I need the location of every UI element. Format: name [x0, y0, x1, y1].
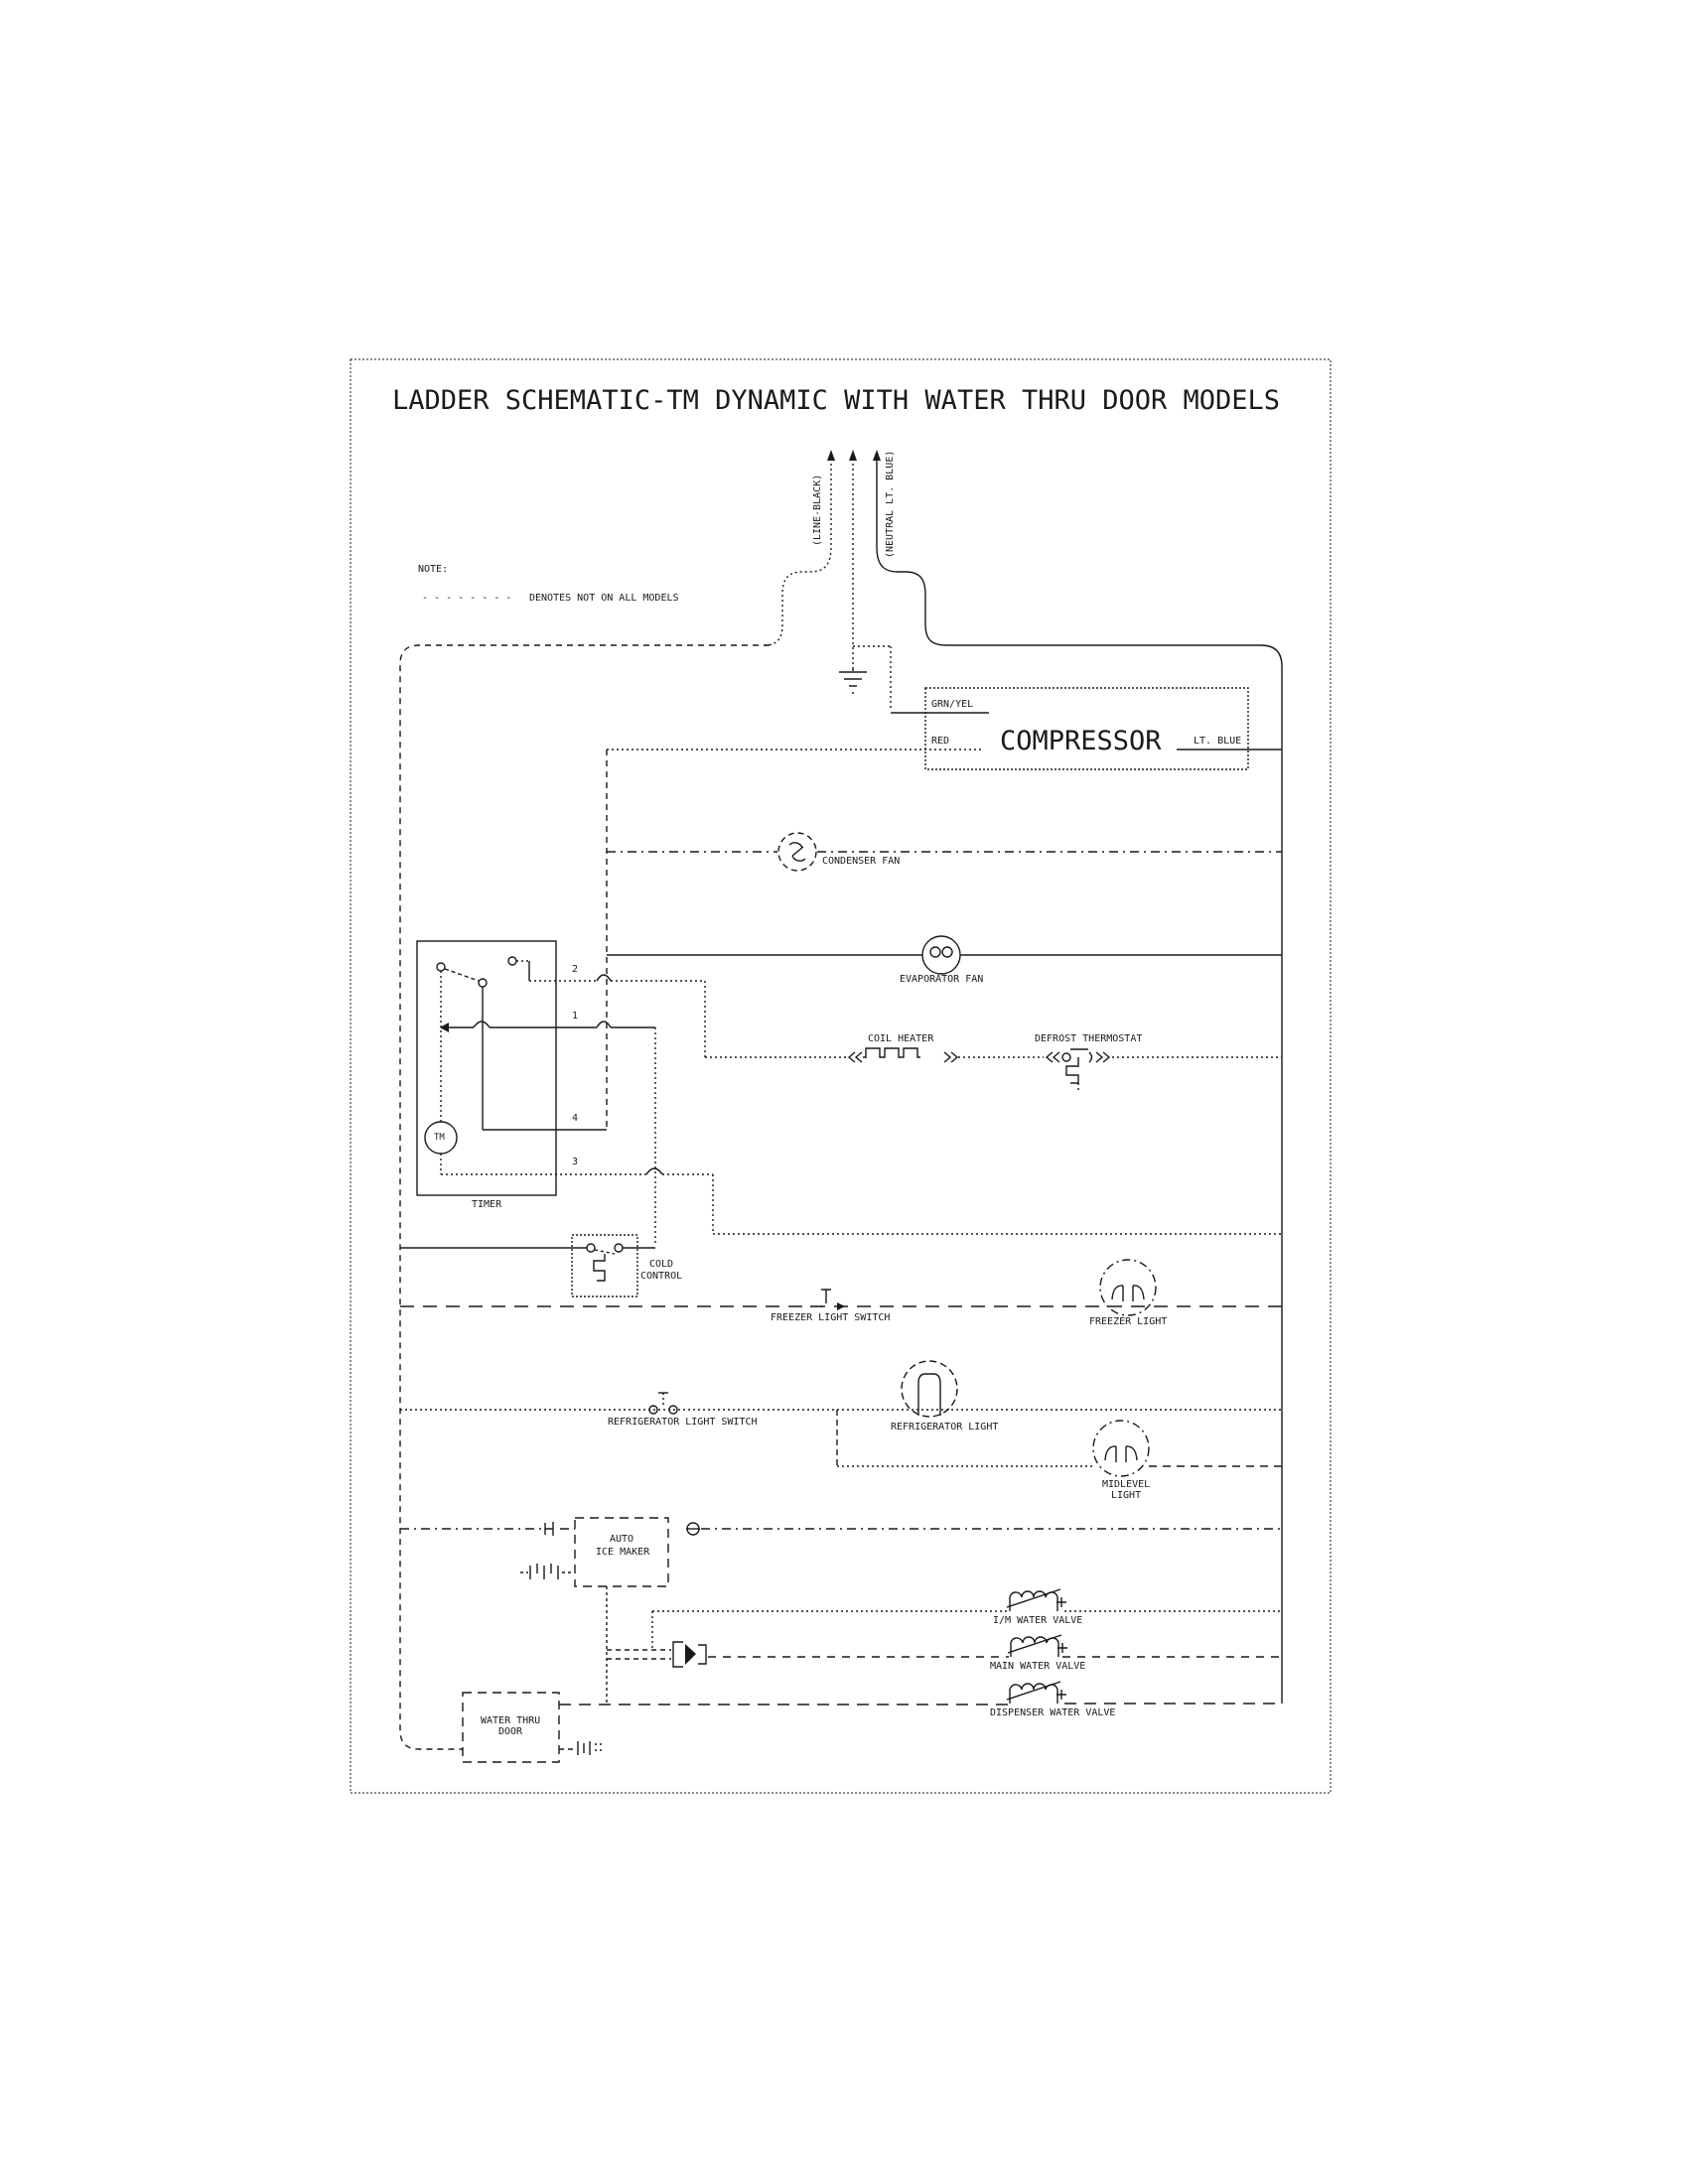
ice-maker-label-2: ICE MAKER	[596, 1547, 649, 1558]
water-thru-door-connector-tail	[595, 1744, 602, 1750]
dispenser-water-valve-row	[559, 1704, 1282, 1705]
midlevel-light-label-1: MIDLEVEL	[1102, 1479, 1150, 1490]
note-label: NOTE:	[418, 564, 448, 575]
ice-maker-label-1: AUTO	[610, 1534, 633, 1545]
evaporator-fan-winding-icon	[942, 947, 952, 957]
water-thru-door-label-2: DOOR	[498, 1726, 522, 1737]
terminal3-row	[441, 1174, 1282, 1234]
cold-control-contact	[615, 1244, 623, 1252]
main-water-valve-label: MAIN WATER VALVE	[990, 1661, 1085, 1672]
valve-feed-pair	[607, 1650, 671, 1659]
page-title: LADDER SCHEMATIC-TM DYNAMIC WITH WATER T…	[392, 387, 1280, 415]
evaporator-fan-icon	[922, 936, 960, 974]
refrigerator-light-switch-label: REFRIGERATOR LIGHT SWITCH	[608, 1417, 758, 1428]
compressor-label: COMPRESSOR	[1000, 728, 1162, 755]
timer-pivot-contact	[437, 963, 445, 971]
cold-control-box	[572, 1235, 637, 1297]
note-text: DENOTES NOT ON ALL MODELS	[529, 593, 679, 604]
freezer-light-filament-icon	[1112, 1286, 1144, 1301]
condenser-fan-label: CONDENSER FAN	[822, 856, 900, 867]
dispenser-water-valve-label: DISPENSER WATER VALVE	[990, 1707, 1115, 1718]
freezer-switch-arrow-icon	[837, 1302, 845, 1310]
water-thru-door-label-1: WATER THRU	[481, 1715, 540, 1726]
line-black-label: (LINE-BLACK)	[812, 475, 823, 546]
cold-control-contact	[587, 1244, 595, 1252]
page-frame	[351, 359, 1331, 1793]
neutral-arrow-icon	[873, 450, 881, 461]
water-thru-door-connector-icon	[578, 1741, 590, 1755]
wire-hop	[474, 1022, 611, 1027]
midlevel-light-icon	[1093, 1421, 1149, 1476]
wire-hop	[597, 975, 611, 981]
timer-terminal3-label: 3	[572, 1157, 578, 1167]
schematic-page: LADDER SCHEMATIC-TM DYNAMIC WITH WATER T…	[0, 0, 1688, 2184]
ground-arrow-icon	[849, 450, 857, 461]
timer-moving-contact	[479, 979, 487, 987]
coil-heater-label: COIL HEATER	[868, 1033, 933, 1044]
ice-maker-connector-icon	[545, 1522, 553, 1536]
defrost-thermostat-label: DEFROST THERMOSTAT	[1035, 1033, 1142, 1044]
wire-hop	[646, 1168, 662, 1174]
timer-switch-blade	[445, 969, 479, 981]
timer-terminal1-label: 1	[572, 1011, 578, 1022]
defrost-thermostat-icon	[1070, 1049, 1092, 1062]
timer-box	[417, 941, 556, 1195]
im-water-valve-icon	[1007, 1589, 1066, 1611]
grn-yel-label: GRN/YEL	[931, 699, 973, 710]
dispenser-water-valve-icon	[1007, 1682, 1066, 1704]
main-water-valve-icon	[1008, 1635, 1067, 1657]
timer-terminal2-label: 2	[572, 964, 578, 975]
red-label: RED	[931, 736, 949, 747]
midlevel-light-label-2: LIGHT	[1111, 1490, 1141, 1501]
freezer-light-switch-icon	[821, 1290, 831, 1303]
midlevel-light-filament-icon	[1105, 1446, 1137, 1462]
neutral-wire-right-rail	[877, 454, 1282, 1704]
cold-control-label-1: COLD	[649, 1259, 673, 1270]
freezer-light-label: FREEZER LIGHT	[1089, 1316, 1167, 1327]
lt-blue-label: LT. BLUE	[1194, 736, 1241, 747]
schematic-linework	[0, 0, 1688, 2184]
left-rail-wire	[400, 645, 770, 1749]
freezer-light-switch-label: FREEZER LIGHT SWITCH	[771, 1312, 890, 1323]
note-dashes: - - - - - - - -	[422, 593, 511, 604]
plug-connector-pin-icon	[685, 1644, 696, 1665]
coil-heater-element-icon	[863, 1048, 920, 1057]
harness-connector-icon	[530, 1564, 558, 1579]
cold-control-sensor-icon	[594, 1254, 605, 1281]
line-black-arrow-icon	[827, 450, 835, 461]
evaporator-fan-winding-icon	[930, 947, 940, 957]
timer-terminal4-label: 4	[572, 1113, 578, 1124]
cold-control-blade	[595, 1250, 615, 1254]
condenser-fan-blades-icon	[789, 843, 805, 861]
evaporator-fan-label: EVAPORATOR FAN	[900, 974, 983, 985]
neutral-label: (NEUTRAL LT. BLUE)	[885, 451, 896, 558]
im-water-valve-label: I/M WATER VALVE	[993, 1615, 1082, 1626]
ground-symbol-icon	[839, 668, 867, 693]
timer-label: TIMER	[472, 1199, 501, 1210]
refrigerator-light-label: REFRIGERATOR LIGHT	[891, 1422, 998, 1433]
timer-motor-label: TM	[434, 1133, 445, 1144]
im-water-valve-row	[652, 1611, 1282, 1650]
cold-control-label-2: CONTROL	[640, 1271, 682, 1282]
refrigerator-light-icon	[902, 1361, 957, 1417]
timer-terminal2-contact	[508, 957, 516, 965]
defrost-thermostat-contact	[1062, 1053, 1070, 1061]
